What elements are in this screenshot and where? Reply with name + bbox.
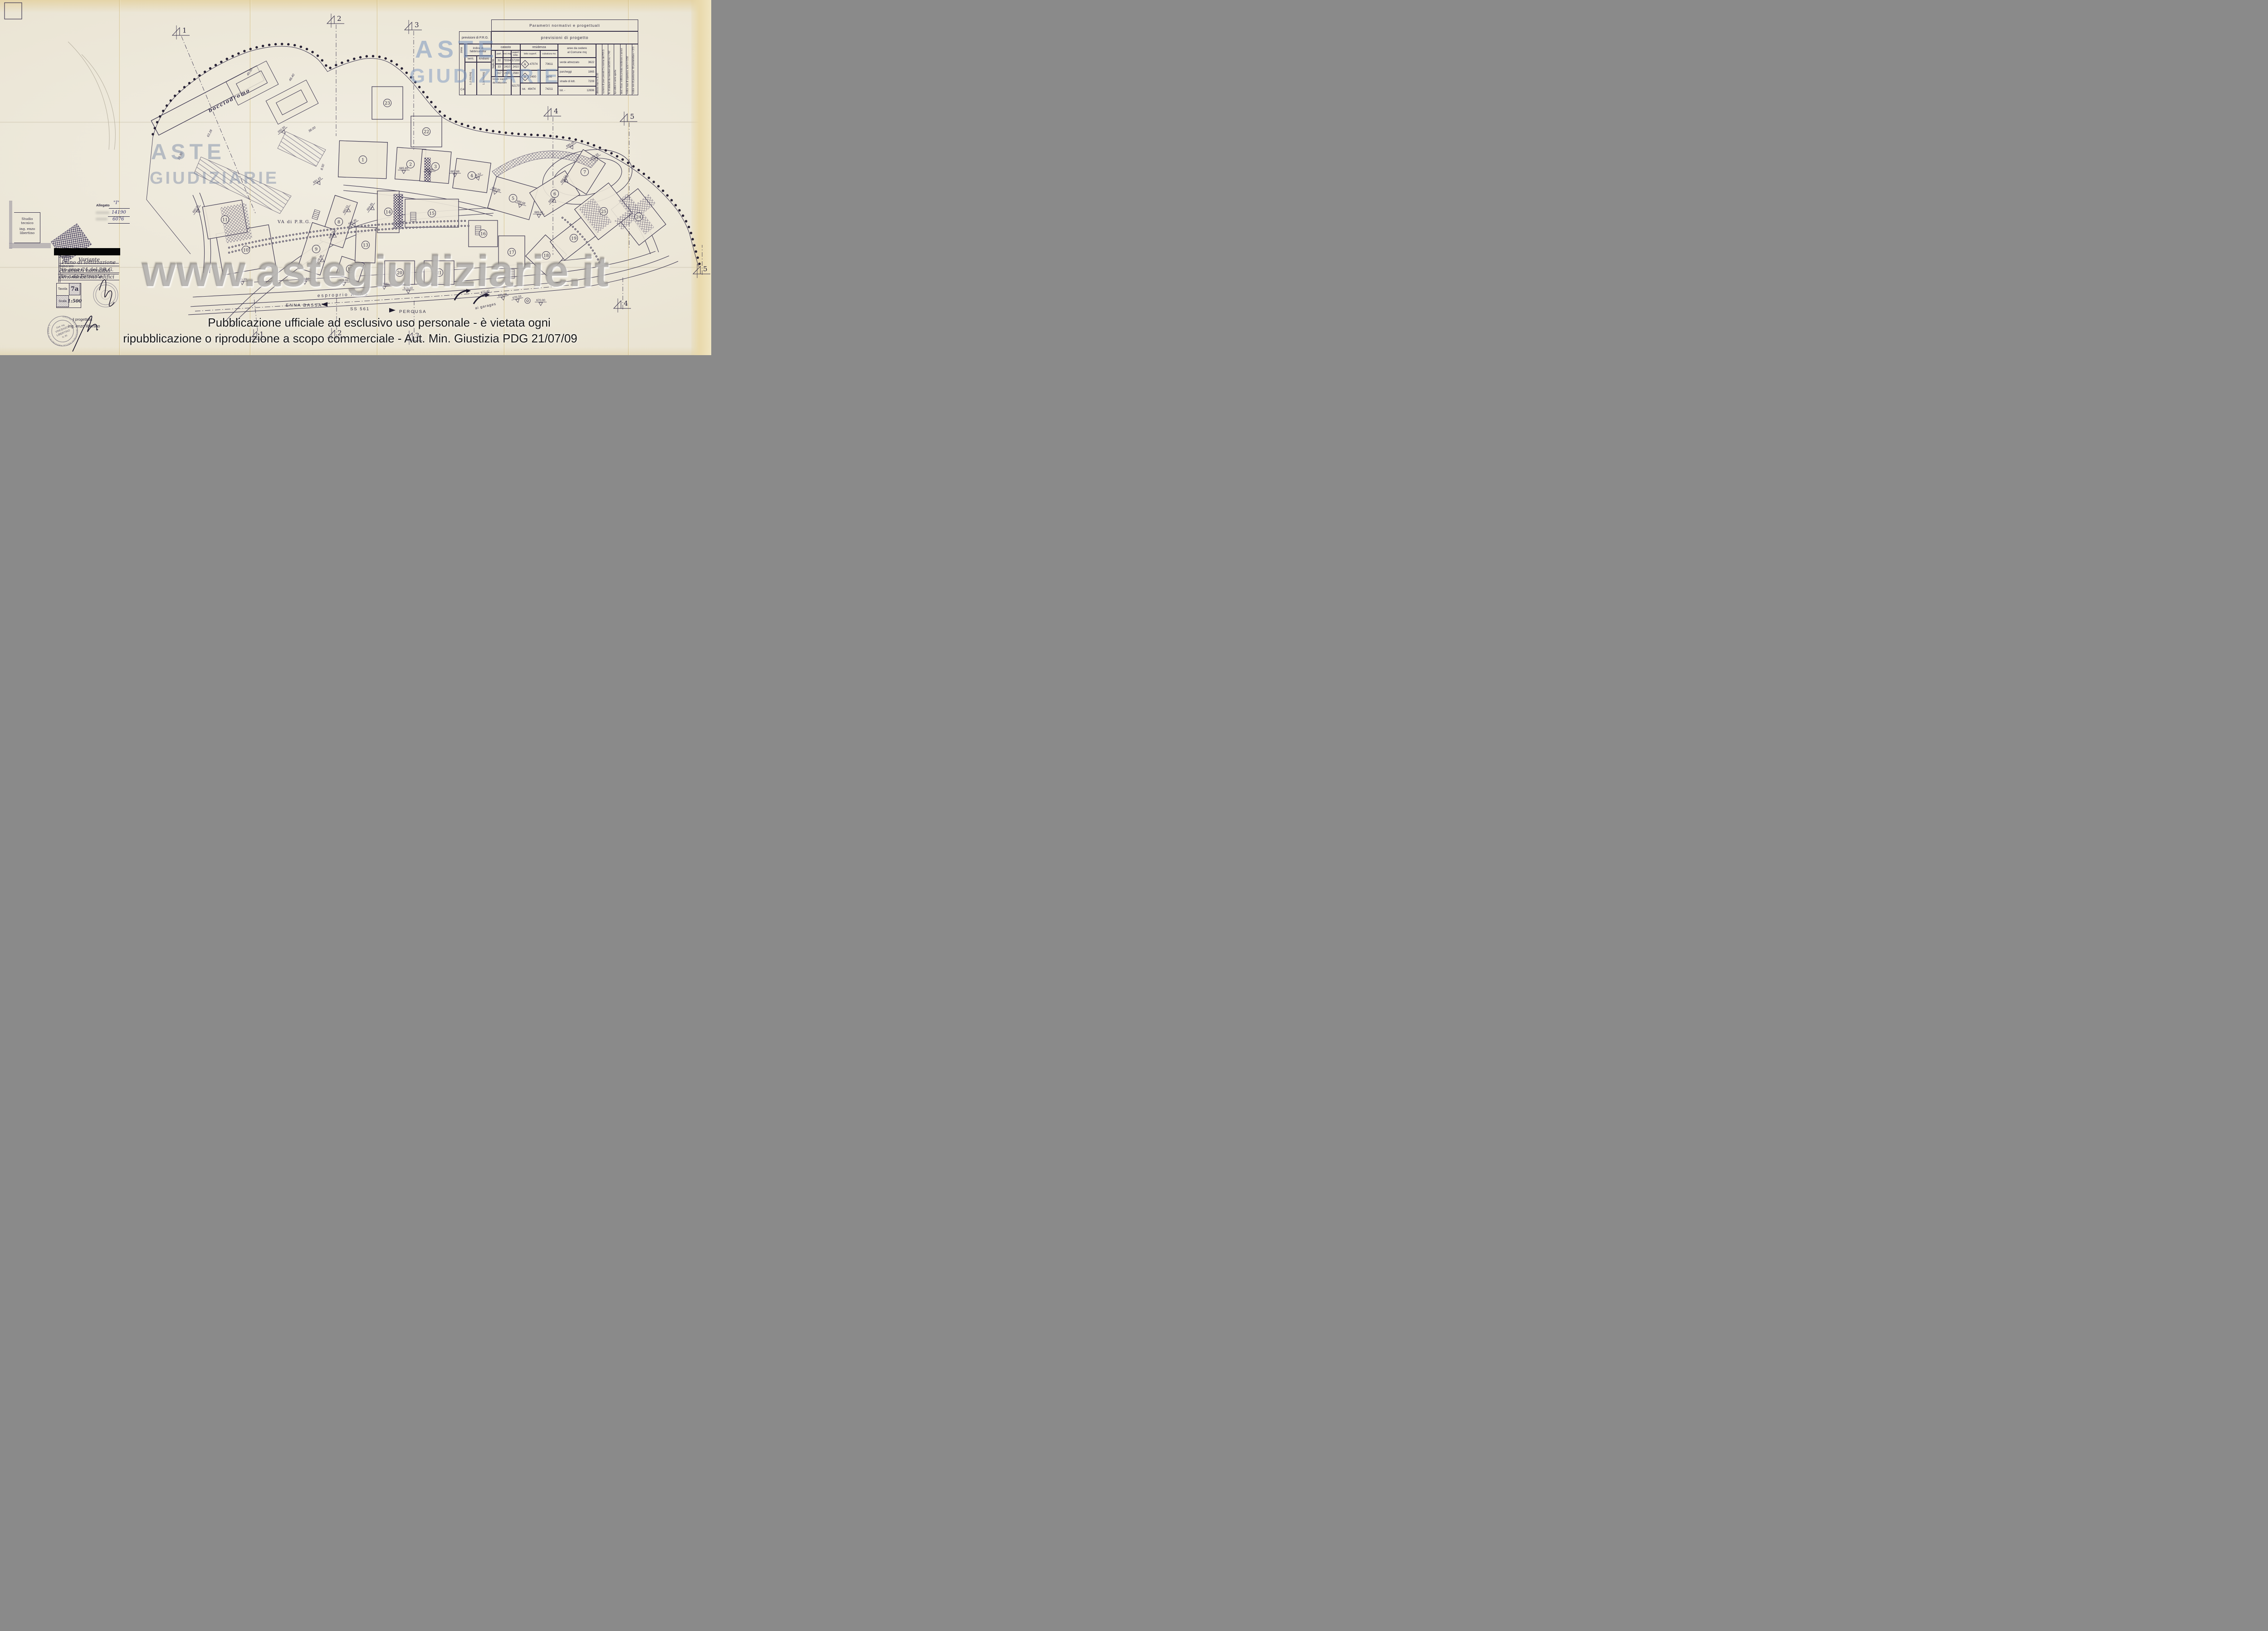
- scanned-plan-sheet: bocciodromo: [0, 0, 711, 355]
- repertorio-value: 14190: [112, 210, 126, 215]
- studio-frame: [9, 243, 51, 248]
- raccolta-value: 6076: [112, 217, 124, 222]
- studio-line1: Studio tecnico: [15, 217, 39, 225]
- ordine-stamp: ORDINE DEGLI INGEGNERI DELLA PROVINCIA D…: [47, 316, 78, 347]
- studio-line2: ing. enzo libertino: [14, 227, 41, 235]
- studio-frame: [9, 200, 12, 249]
- oggetto-label: Oggetto: [59, 255, 71, 259]
- title-block: Studio tecnico ing. enzo libertino Alleg…: [0, 0, 711, 355]
- allegato-label: Allegato: [96, 203, 110, 207]
- disclaimer-line2: ripubblicazione o riproduzione a scopo c…: [123, 332, 577, 346]
- disclaimer-line1: Pubblicazione ufficiale ad esclusivo uso…: [208, 316, 550, 330]
- elaborato-line2: denominazione edifici: [59, 274, 114, 280]
- redaction-bar: [54, 248, 120, 255]
- oggetto-value: Variante: [78, 257, 100, 263]
- allegato-value: "I": [113, 200, 119, 205]
- elaborato-line1: Parametri normativi: [59, 268, 110, 273]
